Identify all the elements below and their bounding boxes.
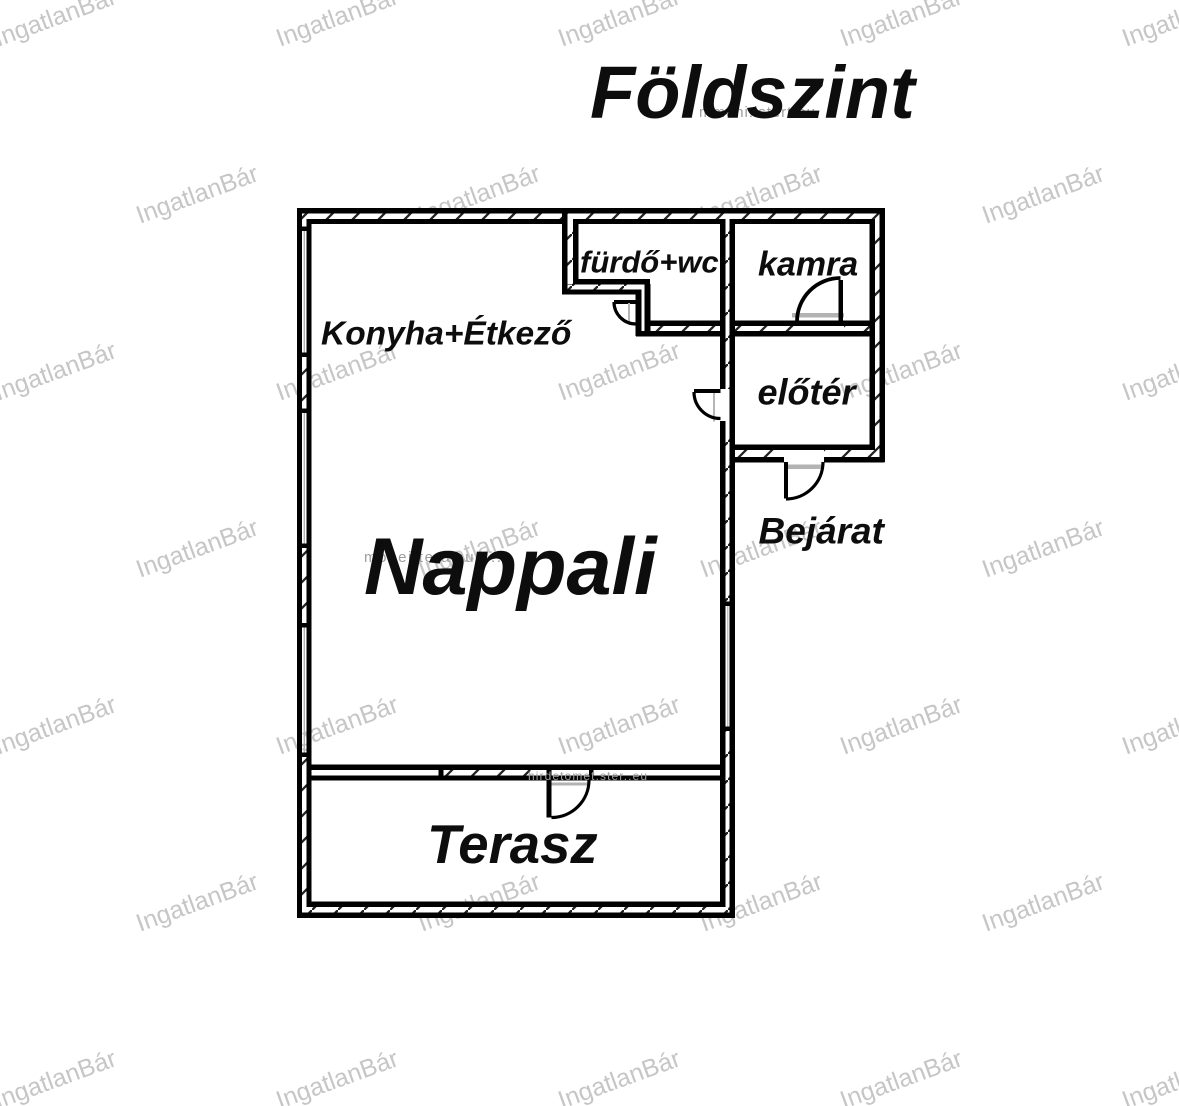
svg-text:hirdetomet.ster..eu: hirdetomet.ster..eu — [528, 769, 647, 783]
svg-text:kamra: kamra — [758, 246, 858, 284]
svg-text:Konyha+Étkező: Konyha+Étkező — [321, 315, 573, 353]
svg-text:Bejárat: Bejárat — [759, 511, 886, 552]
svg-text:fürdő+wc: fürdő+wc — [580, 245, 719, 280]
svg-text:Terasz: Terasz — [427, 814, 598, 875]
svg-text:előtér: előtér — [758, 372, 858, 413]
svg-text:Nappali: Nappali — [364, 522, 658, 612]
svg-text:Földszint: Földszint — [590, 51, 918, 134]
